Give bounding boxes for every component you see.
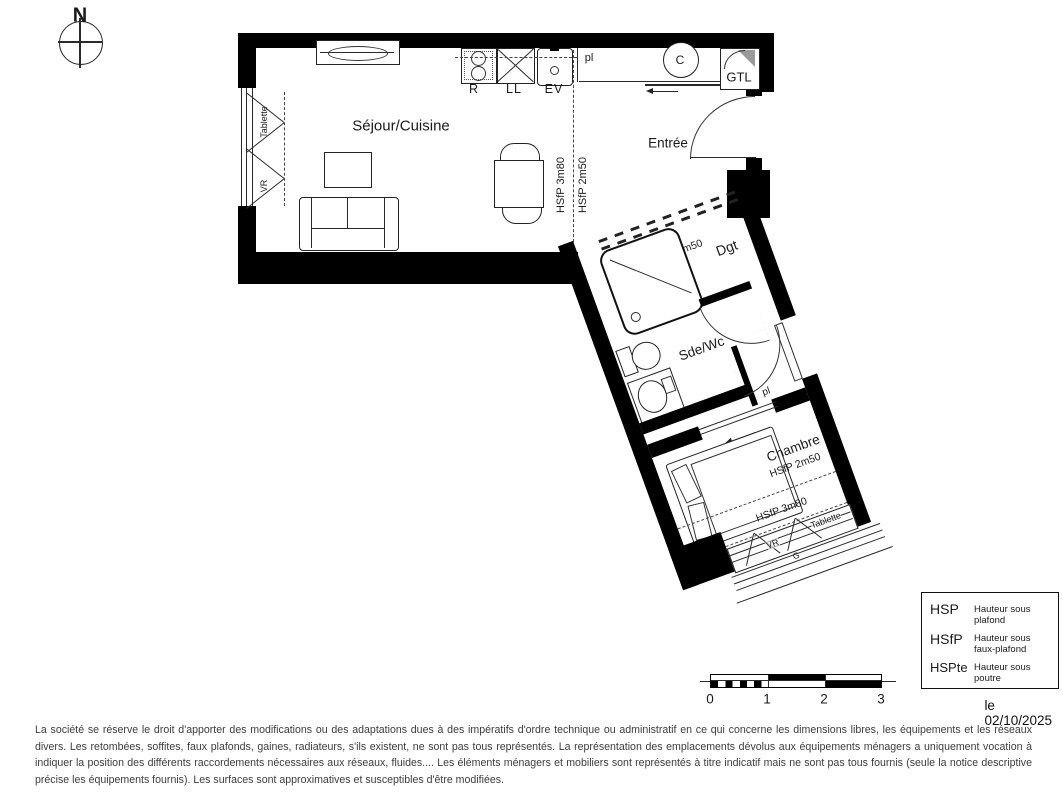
scale-mid-line [711,680,881,681]
legend-row: HSPte Hauteur sous poutre [930,660,1052,684]
legend-desc: Hauteur sous poutre [974,660,1052,684]
legend-row: HSP Hauteur sous plafond [930,601,1052,626]
sejour-room-label: Séjour/Cuisine [352,118,450,135]
drain-icon [550,66,559,75]
counter-dotted-edge [455,57,577,58]
scale-tick-line [768,675,769,687]
sdewc-room-label: Sde/Wc [677,333,727,363]
column-label: C [676,53,685,67]
compass-circle-icon [59,21,103,65]
fridge-circle-icon [471,66,486,81]
faucet-icon [550,44,559,51]
scale-seg-checker [711,681,768,687]
sejour-window-shutter-label: VR [259,180,269,193]
legend-row: HSfP Hauteur sous faux-plafond [930,631,1052,655]
sofa-armrest-line [384,198,385,248]
kitchen-sink-label: EV [545,82,564,96]
ceiling-change-line [573,50,574,252]
closet-arrow-line [652,91,678,92]
scale-seg-black-bottom [826,681,881,687]
fridge-label: R [469,82,479,96]
compass-needle-horizontal [58,41,102,43]
entree-room-label: Entrée [648,136,688,151]
sofa-seat-line [311,228,385,229]
wall-segment-left-upper [238,48,256,88]
sofa-armrest-line [311,198,312,248]
wall-segment-wing-right-lower [802,373,871,527]
gtl-label: GTL [726,70,751,85]
wall-segment-bottom-sejour [238,252,578,284]
wall-segment-left-lower [238,206,256,252]
scale-tick-line [825,675,826,687]
legend-abbr: HSPte [930,660,974,675]
closet-arrow-head-icon [646,88,653,94]
scale-tick-label: 2 [820,692,828,707]
ceiling-label-left: HSfP 3m80 [555,157,567,213]
dgt-room-label: Dgt [714,237,740,259]
hood-line [320,52,394,53]
scale-bar: 0 1 2 3 [700,668,900,710]
legend-desc: Hauteur sous faux-plafond [974,631,1046,655]
entree-closet-label: pl [585,52,594,64]
scale-tick-label: 0 [706,692,714,707]
window-pane-line [241,88,242,206]
window-dashed-line [284,92,285,206]
entrance-door-arc [690,96,755,159]
dining-table-icon [494,160,544,208]
hood-fan-icon [328,46,388,61]
scale-tick-label: 3 [877,692,885,707]
wall-segment-chambre-top-right [771,387,810,412]
entrance-door-leaf [690,157,756,158]
washer-label: LL [506,82,522,96]
legend-abbr: HSfP [930,631,974,647]
disclaimer-text: La société se réserve le droit d'apporte… [35,722,1032,788]
closet-partition-line [577,48,578,82]
dgt-closet-label: pl [761,385,772,398]
compass-needle-vertical [79,18,81,68]
ceiling-label-right: HSfP 2m50 [577,157,589,213]
scale-tick-label: 1 [763,692,771,707]
fridge-circle-icon [471,51,486,66]
legend-box: HSP Hauteur sous plafond HSfP Hauteur so… [921,592,1059,689]
scale-bar-body [710,674,882,688]
legend-abbr: HSP [930,601,974,617]
coffee-table-icon [324,152,372,188]
sofa-cushion-divider [347,198,348,228]
legend-desc: Hauteur sous plafond [974,601,1052,626]
sejour-window-shelf-label: Tablette [259,106,269,138]
angled-wing: HSfP 2m50 Dgt Sde/Wc pl Chambr [560,184,885,628]
floor-plan-page: N Tablette VR R LL EV HSfP 3m80 HSfP 2m5… [0,0,1063,800]
